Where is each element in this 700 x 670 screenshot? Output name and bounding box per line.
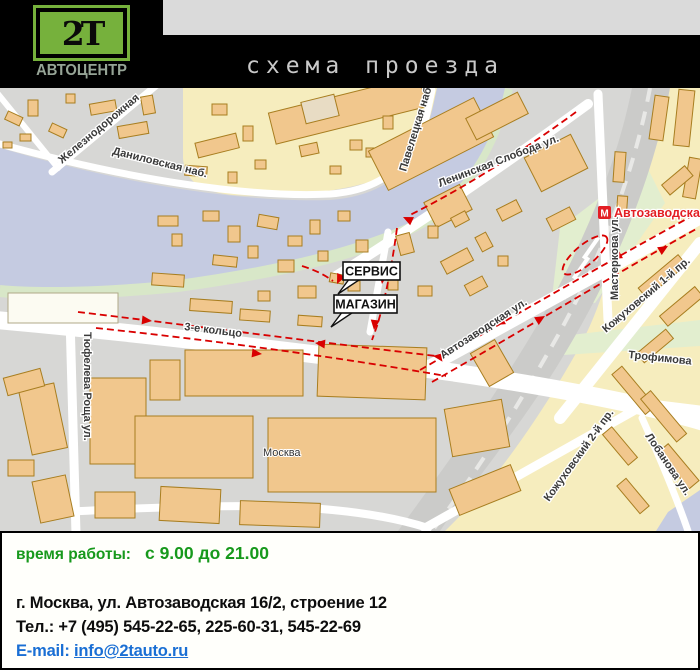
- street-label-masterkova: Мастеркова ул.: [609, 216, 621, 300]
- ice-palace-building: [8, 293, 118, 323]
- metro-name-label: Автозаводская: [614, 206, 700, 220]
- address-block: г. Москва, ул. Автозаводская 16/2, строе…: [16, 591, 387, 663]
- service-callout-label: СЕРВИС: [345, 265, 398, 279]
- metro-icon-letter: М: [600, 209, 608, 220]
- logo-2t-mark: 2Т: [36, 8, 127, 58]
- header: 2Т АВТОЦЕНТР схема проезда: [0, 0, 700, 88]
- shop-callout-label: МАГАЗИН: [335, 298, 396, 312]
- email-label: E-mail:: [16, 642, 70, 660]
- map-svg: Железнодорожная Даниловская наб. Павелец…: [0, 88, 700, 531]
- phone-line: Тел.: +7 (495) 545-22-65, 225-60-31, 545…: [16, 615, 387, 639]
- page: 2Т АВТОЦЕНТР схема проезда: [0, 0, 700, 670]
- email-line: E-mail: info@2tauto.ru: [16, 639, 387, 663]
- metro-station: М Автозаводская: [598, 206, 700, 220]
- page-title: схема проезда: [246, 53, 504, 79]
- working-hours-label: время работы:: [16, 546, 131, 563]
- logo-subtitle: АВТОЦЕНТР: [34, 62, 129, 80]
- header-gray-bar: [163, 0, 700, 35]
- address-line: г. Москва, ул. Автозаводская 16/2, строе…: [16, 591, 387, 615]
- email-link[interactable]: info@2tauto.ru: [74, 642, 188, 660]
- contact-info-panel: время работы:с 9.00 до 21.00 г. Москва, …: [0, 531, 700, 670]
- working-hours-value: с 9.00 до 21.00: [145, 543, 269, 563]
- logo-2t: 2Т: [33, 5, 130, 61]
- route-map: Железнодорожная Даниловская наб. Павелец…: [0, 88, 700, 531]
- working-hours: время работы:с 9.00 до 21.00: [16, 543, 269, 564]
- city-label-moskva: Москва: [263, 447, 301, 459]
- street-label-tyufeleva: Тюфелева Роща ул.: [81, 332, 93, 441]
